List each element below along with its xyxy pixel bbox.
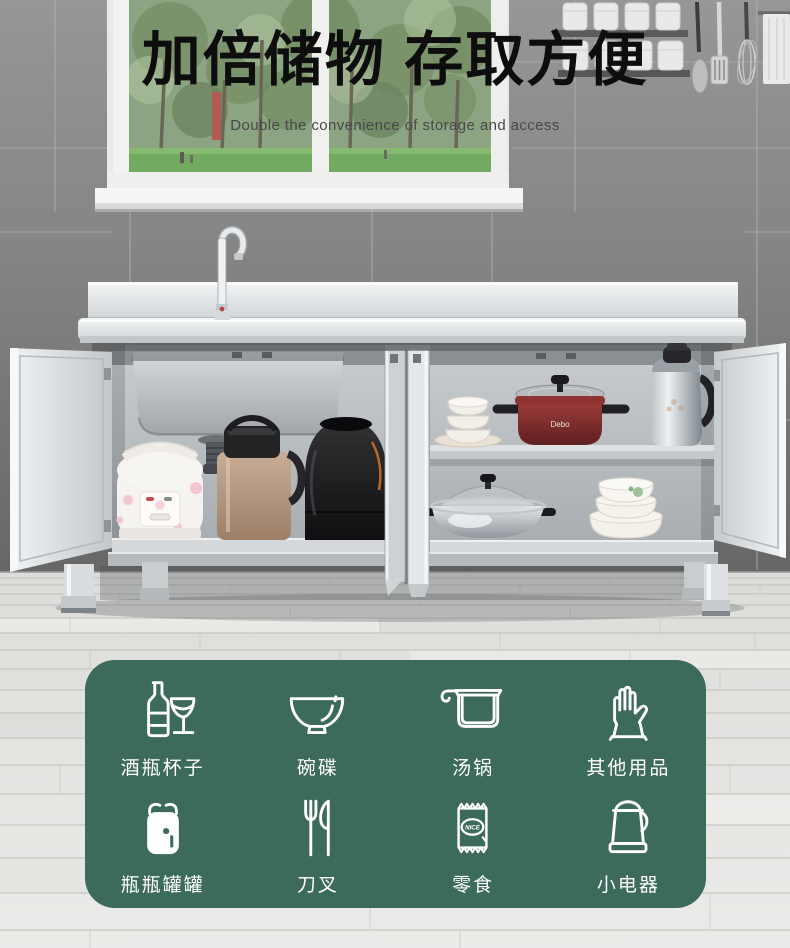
- glove-icon: [593, 673, 663, 749]
- feature-item: 刀叉: [240, 785, 395, 902]
- feature-label: 瓶瓶罐罐: [121, 870, 205, 897]
- page-subtitle: Double the convenience of storage and ac…: [0, 117, 790, 134]
- feature-item: 其他用品: [551, 668, 706, 785]
- right-door-open: [714, 343, 786, 558]
- feature-item: 小电器: [551, 785, 706, 902]
- bowl-icon: [283, 673, 353, 749]
- pot-brand-text: Debo: [550, 420, 570, 429]
- big-bowl-stack: [590, 478, 662, 538]
- feature-label: 汤锅: [452, 753, 494, 780]
- left-door-open: [10, 348, 112, 572]
- feature-label: 其他用品: [586, 753, 670, 780]
- soup-pot-icon: [438, 673, 508, 749]
- feature-panel: 酒瓶杯子 碗碟 汤锅: [85, 660, 706, 908]
- feature-item: 瓶瓶罐罐: [85, 785, 240, 902]
- fork-knife-icon: [283, 790, 353, 866]
- rice-cooker: [117, 442, 204, 540]
- feature-item: 碗碟: [240, 668, 395, 785]
- promo-page: Debo: [0, 0, 790, 948]
- feature-item: 汤锅: [396, 668, 551, 785]
- feature-label: 零食: [452, 870, 494, 897]
- page-title: 加倍储物 存取方便: [0, 28, 790, 93]
- wine-bottle-glass-icon: [128, 673, 198, 749]
- countertop: [78, 282, 746, 351]
- feature-item: NICE 零食: [396, 785, 551, 902]
- air-fryer: [305, 417, 387, 540]
- feature-label: 碗碟: [297, 753, 339, 780]
- feature-item: 酒瓶杯子: [85, 668, 240, 785]
- jar-icon: [128, 790, 198, 866]
- feature-label: 刀叉: [297, 870, 339, 897]
- snack-icon: NICE: [438, 790, 508, 866]
- middle-doors: [385, 350, 429, 597]
- stainless-cabinet: Debo: [10, 230, 786, 616]
- snack-packet-text: NICE: [465, 825, 481, 832]
- kettle-icon: [593, 790, 663, 866]
- feature-label: 小电器: [597, 870, 660, 897]
- feature-label: 酒瓶杯子: [121, 753, 205, 780]
